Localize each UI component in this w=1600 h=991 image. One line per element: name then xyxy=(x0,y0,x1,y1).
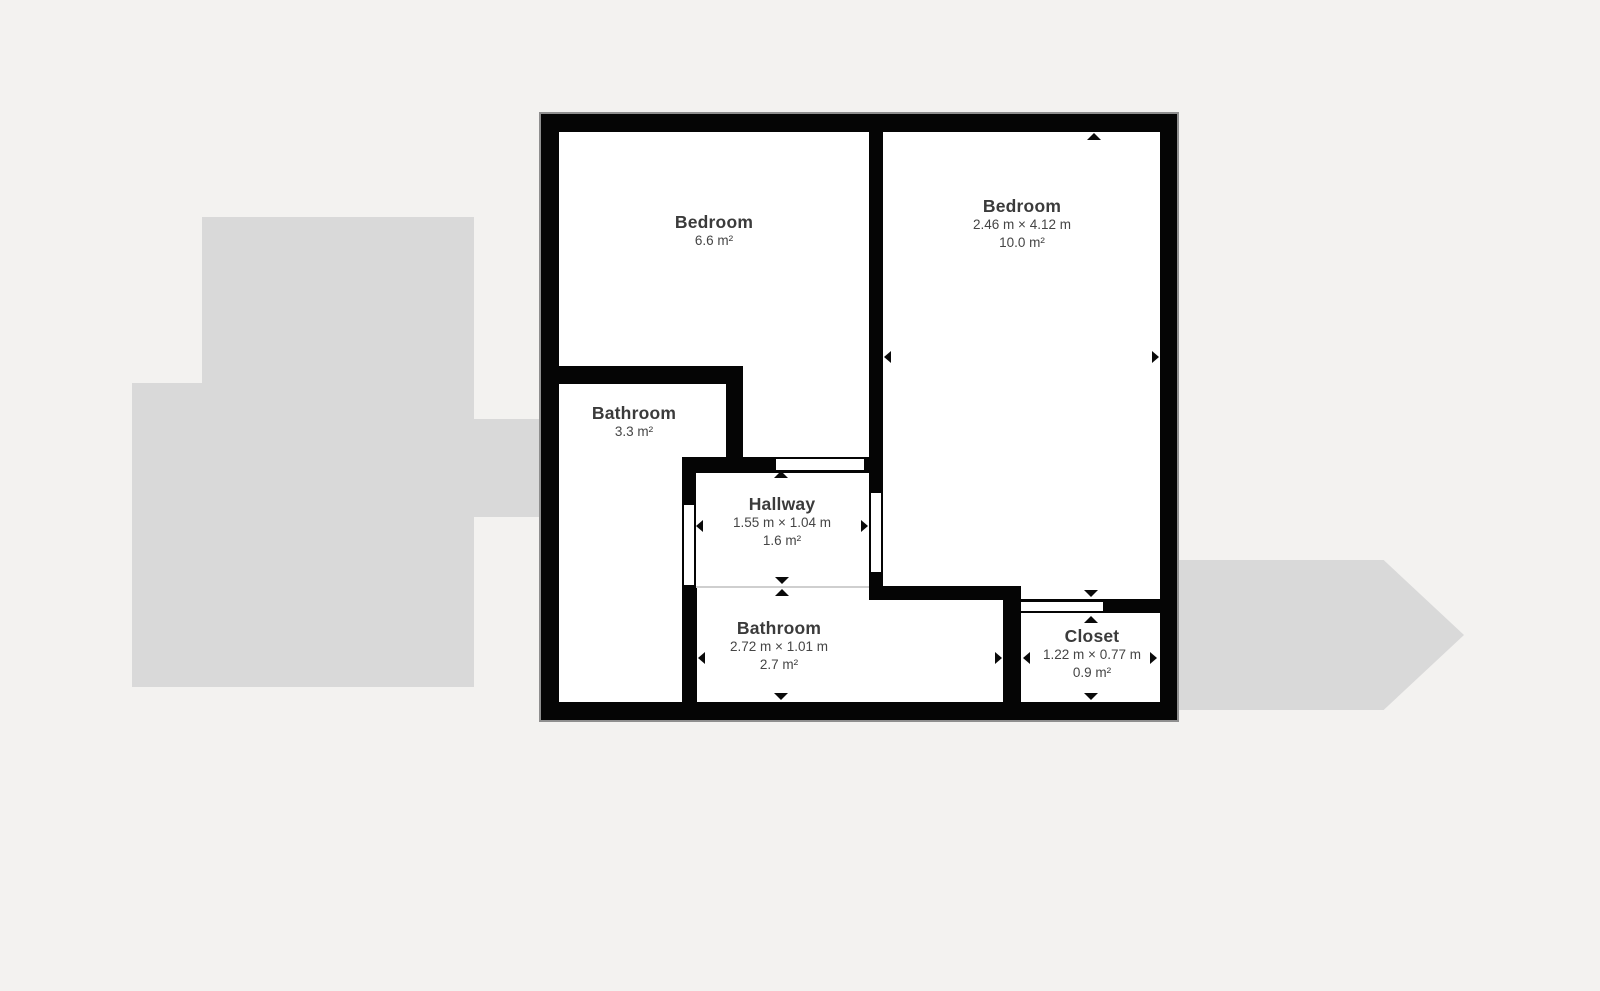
wall-segment xyxy=(869,586,1021,600)
door-swing-down-icon xyxy=(1084,590,1098,597)
door-swing-down-icon xyxy=(774,693,788,700)
room-name: Bathroom xyxy=(592,403,676,423)
door-swing-right-icon xyxy=(1152,351,1159,363)
window-opening-hallway-top xyxy=(776,459,864,470)
door-swing-left-icon xyxy=(1023,652,1030,664)
room-dimensions: 2.46 m × 4.12 m xyxy=(973,216,1071,234)
room-dimensions: 1.22 m × 0.77 m xyxy=(1043,646,1141,664)
door-swing-left-icon xyxy=(696,520,703,532)
window-opening-closet-top xyxy=(1021,602,1103,611)
room-area: 1.6 m² xyxy=(733,532,831,550)
room-name: Hallway xyxy=(733,494,831,514)
room-area: 3.3 m² xyxy=(592,423,676,441)
door-swing-left-icon xyxy=(698,652,705,664)
door-swing-up-icon xyxy=(774,471,788,478)
room-name: Bedroom xyxy=(675,212,753,232)
adjacent-building-connector-shape xyxy=(474,419,542,517)
door-swing-down-icon xyxy=(1084,693,1098,700)
room-label-closet: Closet 1.22 m × 0.77 m 0.9 m² xyxy=(1043,626,1141,682)
adjacent-building-shape xyxy=(202,217,474,383)
door-opening-hallway-right xyxy=(871,493,881,572)
passage-up-icon xyxy=(775,589,789,596)
room-area: 6.6 m² xyxy=(675,232,753,250)
room-name: Closet xyxy=(1043,626,1141,646)
door-opening-hallway-left xyxy=(684,505,694,585)
door-swing-right-icon xyxy=(861,520,868,532)
room-name: Bathroom xyxy=(730,618,828,638)
door-swing-up-icon xyxy=(1087,133,1101,140)
room-label-bedroom-right: Bedroom 2.46 m × 4.12 m 10.0 m² xyxy=(973,196,1071,252)
room-dimensions: 1.55 m × 1.04 m xyxy=(733,514,831,532)
exit-arrow-shape xyxy=(1177,560,1464,710)
door-swing-left-icon xyxy=(884,351,891,363)
door-swing-up-icon xyxy=(1084,616,1098,623)
room-dimensions: 2.72 m × 1.01 m xyxy=(730,638,828,656)
adjacent-building-shape xyxy=(132,383,474,687)
door-swing-right-icon xyxy=(995,652,1002,664)
room-bedroom-left-nook[interactable] xyxy=(743,366,869,457)
open-passage-line xyxy=(696,586,869,588)
room-label-hallway: Hallway 1.55 m × 1.04 m 1.6 m² xyxy=(733,494,831,550)
room-bathroom-left-lower[interactable] xyxy=(559,457,682,702)
room-area: 2.7 m² xyxy=(730,656,828,674)
room-label-bedroom-left: Bedroom 6.6 m² xyxy=(675,212,753,250)
room-bathroom-bottom-right[interactable] xyxy=(869,600,1003,702)
door-swing-right-icon xyxy=(1150,652,1157,664)
room-label-bathroom-bottom: Bathroom 2.72 m × 1.01 m 2.7 m² xyxy=(730,618,828,674)
room-label-bathroom-left: Bathroom 3.3 m² xyxy=(592,403,676,441)
room-name: Bedroom xyxy=(973,196,1071,216)
passage-down-icon xyxy=(775,577,789,584)
room-area: 0.9 m² xyxy=(1043,664,1141,682)
floorplan-canvas: Bedroom 6.6 m² Bedroom 2.46 m × 4.12 m 1… xyxy=(0,0,1600,991)
room-area: 10.0 m² xyxy=(973,234,1071,252)
